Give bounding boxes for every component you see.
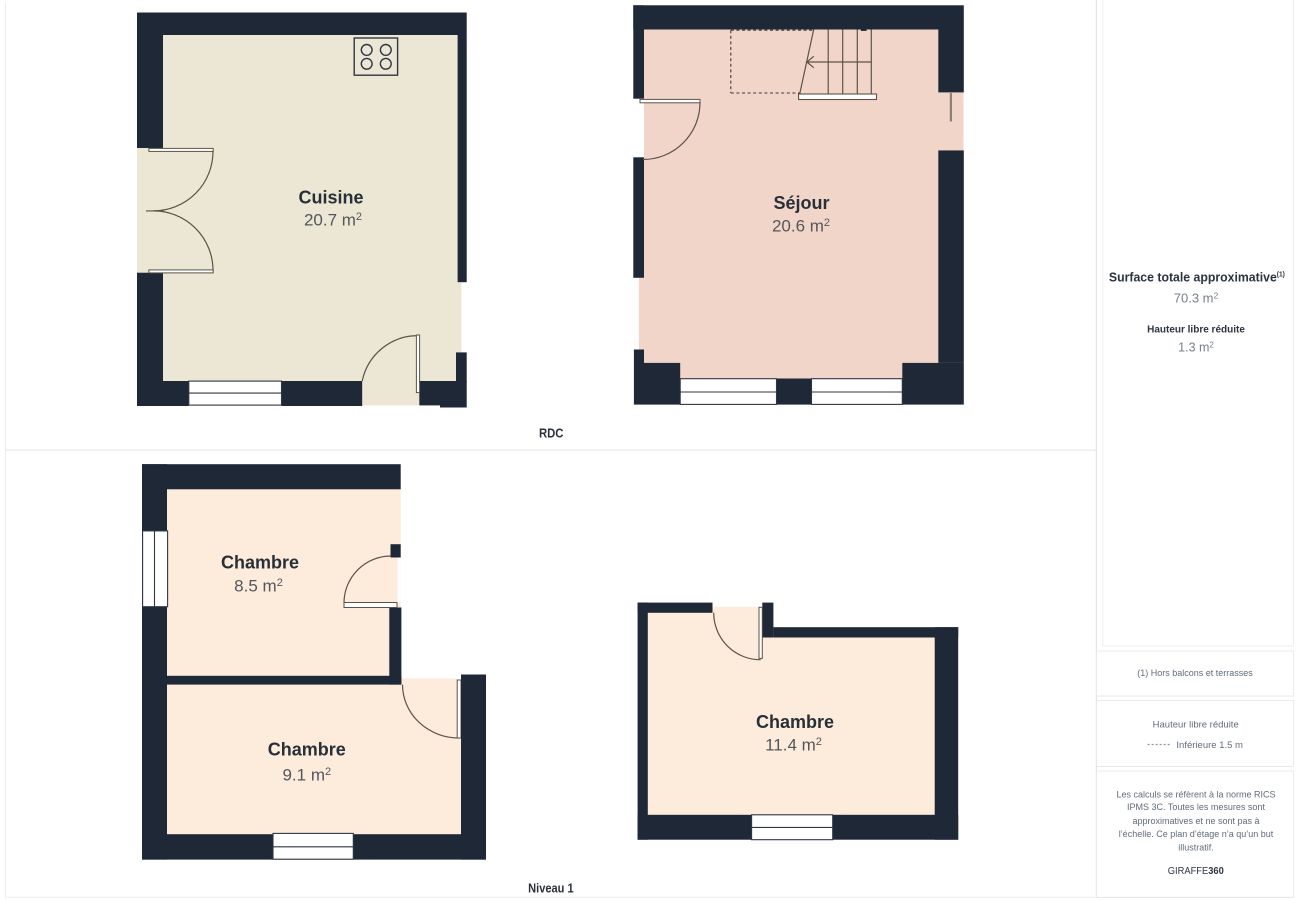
- svg-text:Cuisine: Cuisine: [298, 188, 363, 208]
- svg-text:Hauteur libre réduite: Hauteur libre réduite: [1147, 325, 1245, 336]
- svg-text:20.6 m2: 20.6 m2: [772, 217, 830, 236]
- svg-text:Surface totale approximative(1: Surface totale approximative(1): [1109, 270, 1285, 285]
- svg-text:Chambre: Chambre: [756, 712, 834, 732]
- svg-text:GIRAFFE360: GIRAFFE360: [1168, 865, 1224, 877]
- svg-text:20.7 m2: 20.7 m2: [304, 211, 362, 230]
- svg-text:IPMS 3C. Toutes les mesures so: IPMS 3C. Toutes les mesures sont: [1127, 802, 1265, 812]
- svg-text:Hauteur libre réduite: Hauteur libre réduite: [1153, 720, 1239, 731]
- svg-text:(1) Hors balcons et terrasses: (1) Hors balcons et terrasses: [1137, 668, 1253, 678]
- svg-text:9.1 m2: 9.1 m2: [282, 766, 331, 785]
- svg-text:8.5 m2: 8.5 m2: [234, 577, 283, 596]
- svg-text:Inférieure 1.5 m: Inférieure 1.5 m: [1176, 740, 1243, 751]
- svg-text:11.4 m2: 11.4 m2: [765, 736, 822, 755]
- svg-text:70.3 m2: 70.3 m2: [1174, 291, 1219, 306]
- svg-text:approximatives et ne sont pas: approximatives et ne sont pas à: [1132, 816, 1259, 826]
- svg-text:Les calculs se réfèrent à la n: Les calculs se réfèrent à la norme RICS: [1116, 789, 1275, 799]
- svg-text:Chambre: Chambre: [268, 740, 346, 760]
- svg-text:Séjour: Séjour: [773, 193, 829, 213]
- svg-text:Niveau 1: Niveau 1: [528, 881, 574, 896]
- svg-text:1.3 m2: 1.3 m2: [1178, 341, 1214, 355]
- svg-text:RDC: RDC: [539, 426, 564, 441]
- svg-text:illustratif.: illustratif.: [1178, 842, 1214, 852]
- svg-text:l’échelle. Ce plan d’étage n’a: l’échelle. Ce plan d’étage n’a qu’un but: [1119, 829, 1274, 839]
- svg-text:Chambre: Chambre: [221, 553, 299, 573]
